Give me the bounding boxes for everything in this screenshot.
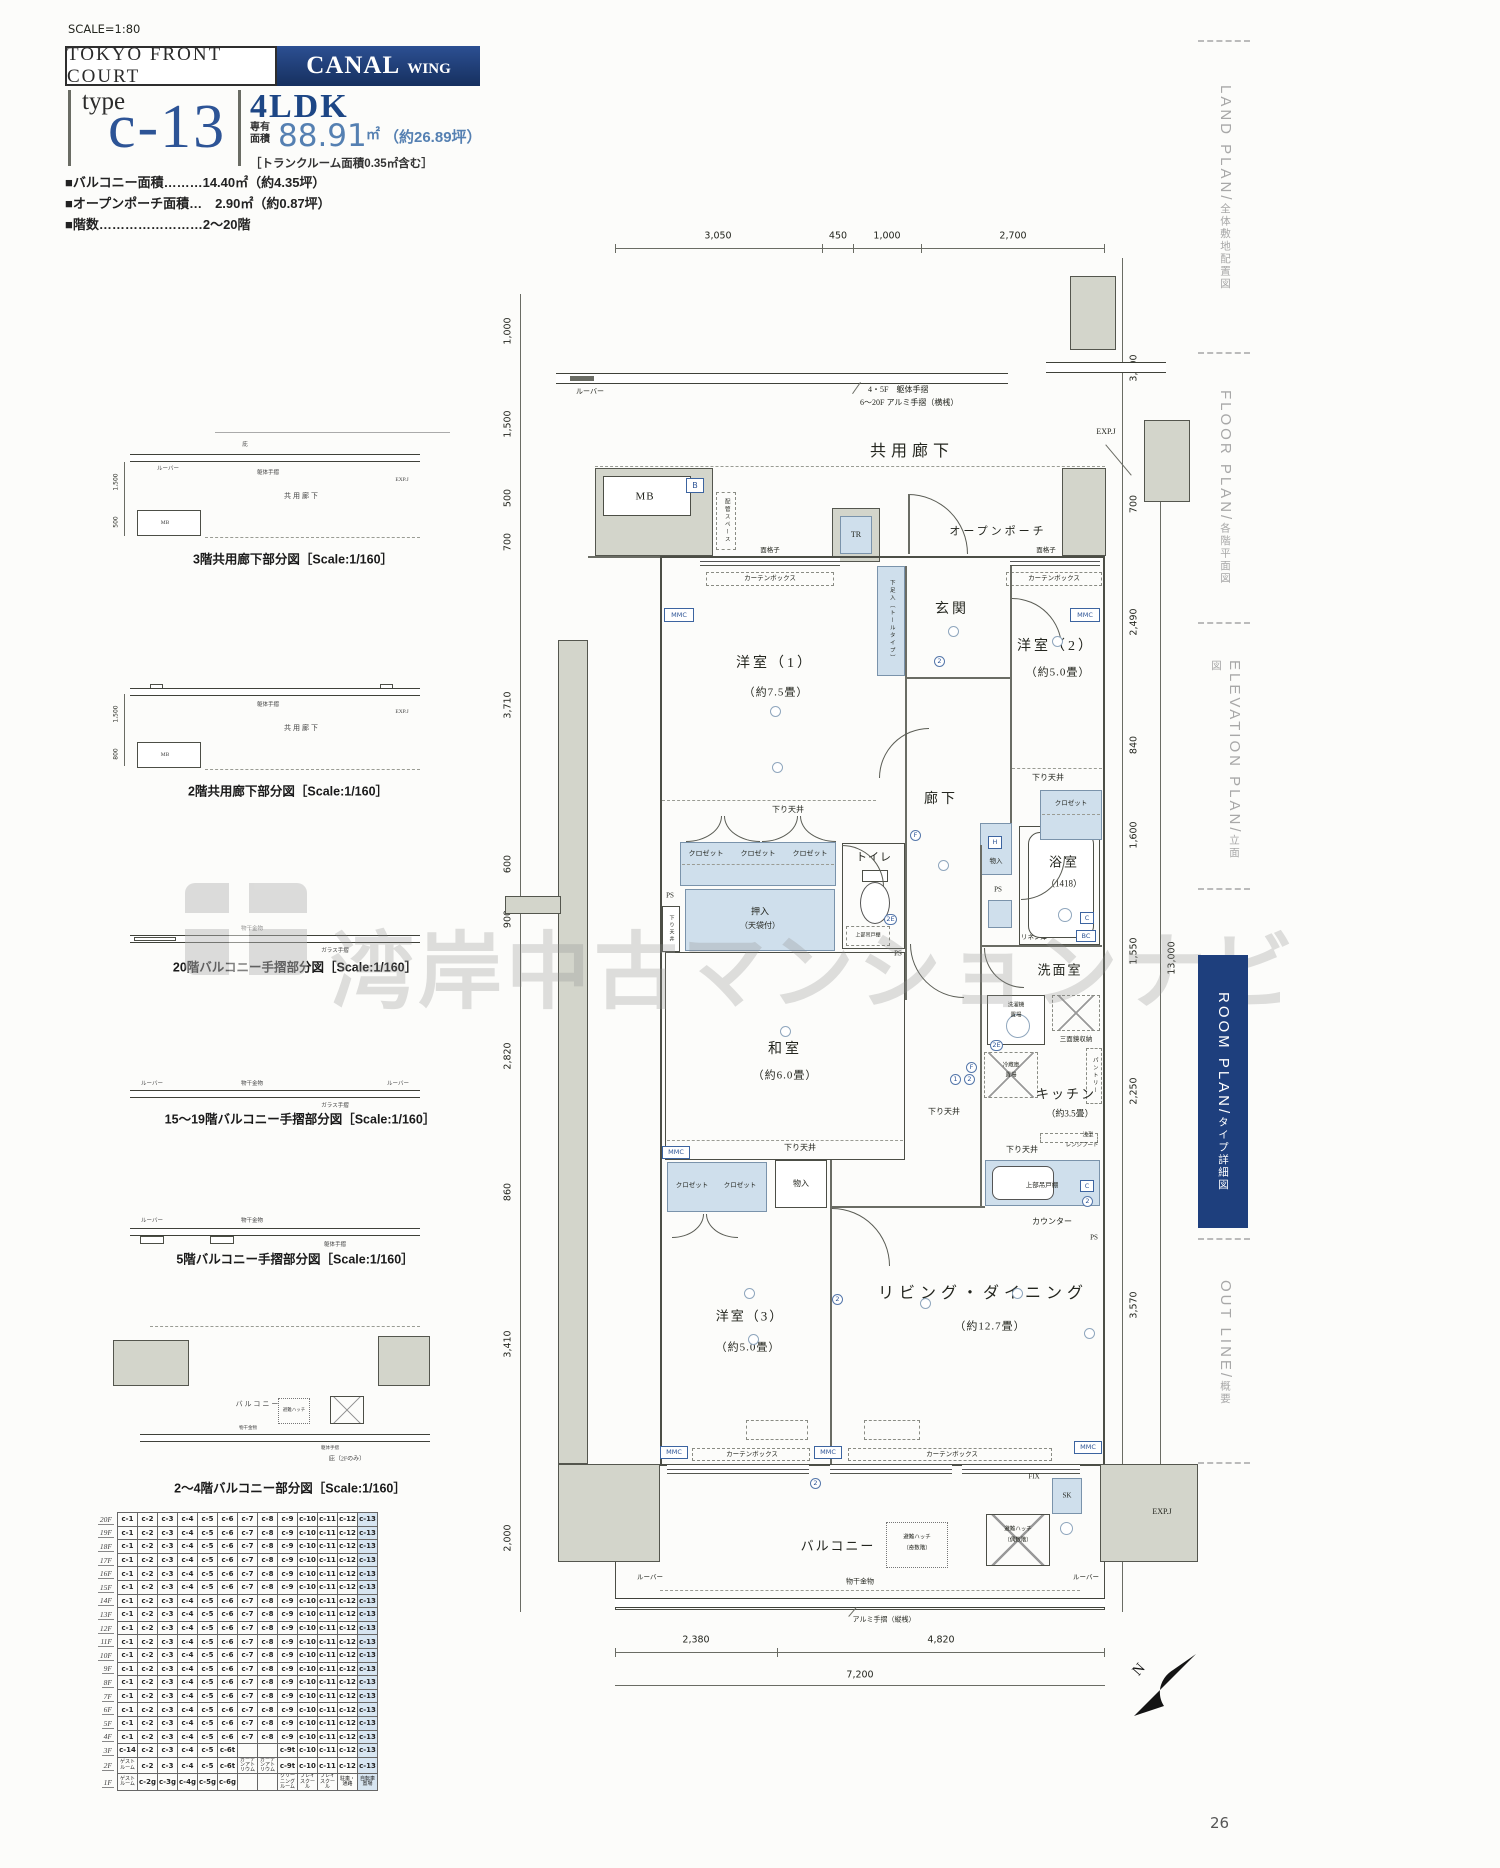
washitsu-size-label: （約6.0畳） (753, 1071, 818, 1082)
type-cell: c-11 (318, 1662, 338, 1676)
type-cell: c-14 (118, 1744, 138, 1758)
type-cell: c-2 (138, 1608, 158, 1622)
type-cell: c-2 (138, 1689, 158, 1703)
hall-west-wall (905, 566, 907, 1000)
floor-row: 10Fc-1c-2c-3c-4c-5c-6c-7c-8c-9c-10c-11c-… (88, 1648, 378, 1662)
mini1-dim-500: 500 (113, 516, 120, 527)
type-cell: c-5 (198, 1648, 218, 1662)
floor-row: 16Fc-1c-2c-3c-4c-5c-6c-7c-8c-9c-10c-11c-… (88, 1567, 378, 1581)
mini6-pillar-right (378, 1336, 430, 1386)
type-cell: c-2 (138, 1621, 158, 1635)
type-cell: c-11 (318, 1608, 338, 1622)
mini1-canopy-line (215, 432, 450, 433)
h-storage-box (980, 823, 1012, 875)
mmc-badge-bed3: MMC (660, 1446, 688, 1459)
proj-box-2 (864, 1420, 920, 1440)
type-cell: c-10 (298, 1676, 318, 1690)
mini2-dim-800: 800 (113, 748, 120, 759)
mini5-caption: 5階バルコニー手摺部分図［Scale:1/160］ (176, 1249, 413, 1268)
sidebar-divider (1198, 888, 1250, 890)
type-cell: 自転車置場 (358, 1774, 378, 1791)
bed3-label: 洋室（3） (716, 1310, 785, 1323)
type-cell: c-9 (278, 1526, 298, 1540)
linen-box (988, 900, 1012, 928)
type-cell: c-6 (218, 1526, 238, 1540)
type-cell: c-7 (238, 1567, 258, 1581)
type-cell: c-13 (358, 1730, 378, 1744)
type-cell: c-5 (198, 1513, 218, 1527)
corridor-label: 共用廊下 (870, 444, 954, 460)
mini6-rail (140, 1434, 430, 1442)
louver-hatch (570, 376, 594, 381)
type-cell: c-3g (158, 1774, 178, 1791)
tick (615, 1648, 616, 1657)
type-cell: c-8 (258, 1676, 278, 1690)
area-prefix-2: 面積 (250, 134, 270, 146)
sidebar-divider (1198, 40, 1250, 42)
type-cell: c-1 (118, 1526, 138, 1540)
mini3-monohoshi-label: 物干金物 (241, 924, 263, 932)
rangehood-label-1: 浅型 (1082, 1133, 1093, 1139)
living-lamp3 (1084, 1328, 1095, 1339)
type-cell: c-11 (318, 1526, 338, 1540)
type-cell: c-8 (258, 1553, 278, 1567)
open-porch-label: オープンポーチ (949, 527, 1046, 538)
expj-label-top: EXP.J (1096, 428, 1115, 436)
type-cell: c-9 (278, 1594, 298, 1608)
bed1-closet-mid (682, 864, 834, 865)
type-cell: c-1 (118, 1553, 138, 1567)
type-cell: c-10 (298, 1716, 318, 1730)
dim-bottom-total: 7,200 (846, 1670, 873, 1681)
type-cell: c-4 (178, 1744, 198, 1758)
b-badge: B (686, 478, 704, 493)
genkan-hall-wall (905, 677, 1010, 679)
bed2-closet (1040, 790, 1102, 840)
type-cell: c-4 (178, 1513, 198, 1527)
floor-label: 3F (88, 1744, 118, 1758)
type-cell: c-4 (178, 1621, 198, 1635)
type-cell: c-10 (298, 1703, 318, 1717)
dimline-right-outer (1160, 479, 1161, 1479)
type-cell: c-2 (138, 1676, 158, 1690)
mini2-corridor-edge (205, 769, 420, 770)
laundry-label-1: 洗濯機 (1008, 1003, 1025, 1009)
type-cell: c-4 (178, 1676, 198, 1690)
compass-needle (1134, 1654, 1196, 1716)
bed2-lowceil-label: 下り天井 (1032, 774, 1064, 782)
type-cell: c-9 (278, 1513, 298, 1527)
balcony-label: バルコニー (801, 1540, 876, 1553)
type-cell: ガーデンアトリウム (258, 1757, 278, 1774)
entry-door-arc (908, 494, 968, 554)
ps-label-4: PS (1090, 1235, 1098, 1242)
type-cell: c-1 (118, 1716, 138, 1730)
type-cell: c-2 (138, 1716, 158, 1730)
bed3-closet-label-2: クロゼット (724, 1183, 757, 1190)
type-cell: c-11 (318, 1730, 338, 1744)
type-rule-mid (238, 90, 241, 166)
type-cell: c-3 (158, 1676, 178, 1690)
type-cell: c-4 (178, 1580, 198, 1594)
tab-text: ELEVATION PLAN/立面図 (1207, 660, 1243, 870)
mmc-badge-living: MMC (814, 1446, 842, 1459)
floor-row: 2Fゲストルームc-2c-3c-4c-5c-6tガーデンアトリウムガーデンアトリ… (88, 1757, 378, 1774)
mini6-hatch-solid (330, 1396, 364, 1424)
area-value: 88.91 (278, 118, 367, 154)
type-cell: c-3 (158, 1513, 178, 1527)
balcony-drain (1060, 1522, 1073, 1535)
mini4-louver-left: ルーバー (141, 1079, 163, 1087)
corridor-handrail-left (556, 373, 1008, 384)
floor-label: 17F (88, 1553, 118, 1567)
oshiire-label-1: 押入 (751, 908, 769, 917)
dim-top-0: 3,050 (704, 231, 731, 242)
type-cell: c-5 (198, 1580, 218, 1594)
badge-2e-toilet: 2E (884, 914, 897, 925)
entry-door-leaf (908, 494, 910, 554)
type-cell: c-5 (198, 1621, 218, 1635)
type-cell: c-6 (218, 1730, 238, 1744)
type-cell: c-9 (278, 1540, 298, 1554)
monohoshi-line (660, 1590, 1080, 1591)
mini6-balcony-label: バルコニー (236, 1399, 281, 1409)
type-rule-left (68, 90, 71, 166)
type-cell: c-5 (198, 1703, 218, 1717)
type-cell: c-13 (358, 1744, 378, 1758)
handrail-note-1: 4・5F 躯体手摺 (868, 386, 928, 394)
type-cell: c-10 (298, 1744, 318, 1758)
floor-row: 5Fc-1c-2c-3c-4c-5c-6c-7c-8c-9c-10c-11c-1… (88, 1716, 378, 1730)
type-cell: c-6 (218, 1540, 238, 1554)
type-cell: c-1 (118, 1635, 138, 1649)
fridge-label-2: 置場 (1005, 1073, 1016, 1079)
dimline-bottom-total (615, 1685, 1105, 1686)
bed3-lamp1 (744, 1288, 755, 1299)
type-cell: c-6t (218, 1744, 238, 1758)
ps-label-1: PS (666, 893, 674, 900)
type-cell: c-1 (118, 1513, 138, 1527)
tick (853, 244, 854, 253)
type-cell: c-3 (158, 1744, 178, 1758)
type-cell: c-3 (158, 1730, 178, 1744)
tick (921, 244, 922, 253)
bed2-lamp (1052, 636, 1063, 647)
mini2-expj-label: EXP.J (395, 709, 408, 715)
type-cell: c-8 (258, 1526, 278, 1540)
type-cell: c-2 (138, 1635, 158, 1649)
sk-label: SK (1063, 1493, 1072, 1500)
mini1-louver-label: ルーバー (157, 464, 179, 472)
area-tsubo: （約26.89坪） (384, 126, 482, 147)
dim-right-1: 700 (1129, 495, 1140, 513)
type-cell: c-5 (198, 1567, 218, 1581)
mini1-handrail-label: 躯体手摺 (257, 468, 279, 476)
louver-label-top: ルーバー (576, 389, 604, 396)
unit-top-edge (595, 466, 1105, 467)
curtain-box-bed3-label: カーテンボックス (726, 1452, 778, 1459)
type-cell: c-3 (158, 1662, 178, 1676)
balcony-area-line: ■バルコニー面積………14.40㎡（約4.35坪） (65, 172, 325, 191)
type-cell: c-8 (258, 1567, 278, 1581)
type-cell: c-12 (338, 1608, 358, 1622)
floors-line: ■階数……………………2～20階 (65, 214, 251, 233)
type-cell: c-9t (278, 1757, 298, 1774)
mini1-corridor-label: 共用廊下 (284, 491, 320, 501)
type-cell: c-6 (218, 1703, 238, 1717)
sidebar-divider (1198, 1238, 1250, 1240)
type-cell: c-10 (298, 1621, 318, 1635)
type-cell: c-13 (358, 1676, 378, 1690)
tick (1104, 1648, 1105, 1657)
type-cell: c-5 (198, 1635, 218, 1649)
lowceil-label-kitchen: 下り天井 (1006, 1146, 1038, 1154)
type-cell: c-6 (218, 1716, 238, 1730)
mini2-mb-label: MB (161, 752, 170, 758)
hatch-even-label-2: （偶数階） (1004, 1538, 1032, 1544)
type-cell: c-10 (298, 1540, 318, 1554)
mini6-handrail-label: 躯体手摺 (321, 1445, 339, 1451)
type-cell: c-10 (298, 1730, 318, 1744)
type-cell: c-12 (338, 1526, 358, 1540)
sidebar-item-floor-plan[interactable]: FLOOR PLAN/各階平面図 (1202, 390, 1248, 605)
type-cell: c-1 (118, 1608, 138, 1622)
bed2-closet-mid (1042, 814, 1100, 815)
hatch-even-label-1: 避難ハッチ (1004, 1527, 1032, 1533)
type-cell: c-5 (198, 1608, 218, 1622)
type-cell: c-3 (158, 1703, 178, 1717)
type-cell: c-5 (198, 1676, 218, 1690)
type-cell: c-11 (318, 1757, 338, 1774)
dim-right-total: 13,000 (1167, 941, 1178, 974)
floor-label: 10F (88, 1648, 118, 1662)
mini1-expj-label: EXP.J (395, 477, 408, 483)
mini6-hatch-label: 避難ハッチ (283, 1407, 306, 1413)
type-cell: c-10 (298, 1648, 318, 1662)
type-cell: c-10 (298, 1567, 318, 1581)
bath-drain (1058, 908, 1072, 922)
dim-right-2: 2,490 (1129, 608, 1140, 635)
type-cell: c-11 (318, 1648, 338, 1662)
type-cell: c-7 (238, 1676, 258, 1690)
type-cell: c-11 (318, 1580, 338, 1594)
type-cell: c-11 (318, 1703, 338, 1717)
area-prefix-1: 専有 (250, 122, 270, 134)
dimline-left (520, 294, 521, 1612)
dim-left-2: 500 (503, 489, 514, 507)
area-unit: ㎡ (366, 124, 380, 144)
type-cell: c-12 (338, 1716, 358, 1730)
senmen-top-wall (980, 945, 1102, 947)
mini6-curtainbox-line (150, 1326, 420, 1327)
dim-bottom-1: 4,820 (927, 1635, 954, 1646)
type-cell: c-12 (338, 1744, 358, 1758)
type-code: c-13 (108, 92, 226, 163)
type-cell: c-8 (258, 1730, 278, 1744)
dimline-bottom (615, 1652, 1105, 1653)
column-top-right (1070, 276, 1116, 350)
mini1-corridor-edge (205, 537, 420, 538)
floor-type-table-body: 20Fc-1c-2c-3c-4c-5c-6c-7c-8c-9c-10c-11c-… (88, 1513, 378, 1791)
dim-left-4: 3,710 (503, 691, 514, 718)
sidebar-item-elevation-plan[interactable]: ELEVATION PLAN/立面図 (1202, 660, 1248, 870)
type-cell: c-7 (238, 1608, 258, 1622)
tr-label: TR (851, 531, 861, 539)
type-cell: c-3 (158, 1648, 178, 1662)
bed3-size-label: （約5.0畳） (716, 1343, 781, 1354)
mini5-rail (130, 1228, 420, 1236)
type-cell: プレイスクール (318, 1774, 338, 1791)
type-cell (258, 1774, 278, 1791)
badge-2e-laundry: 2E (990, 1040, 1003, 1051)
trunk-note: ［トランクルーム面積0.35㎡含む］ (250, 155, 433, 171)
type-cell: c-2 (138, 1513, 158, 1527)
hatch-odd-label-1: 避難ハッチ (903, 1535, 931, 1541)
floor-label: 8F (88, 1676, 118, 1690)
bed1-lowceil-line (662, 800, 876, 801)
dimline-top (615, 248, 1105, 249)
tab-text: LAND PLAN/全体敷地配置図 (1216, 85, 1234, 290)
pillar-bottom-left (558, 1464, 660, 1562)
bed2-lowceil-line (1012, 768, 1102, 769)
alumi-rail-label: アルミ手摺（縦桟） (853, 1617, 916, 1624)
type-cell: c-2 (138, 1648, 158, 1662)
type-cell: c-1 (118, 1594, 138, 1608)
type-cell: c-7 (238, 1580, 258, 1594)
badge-1: 1 (950, 1074, 961, 1085)
floor-row: 18Fc-1c-2c-3c-4c-5c-6c-7c-8c-9c-10c-11c-… (88, 1540, 378, 1554)
bed3-closet-label-1: クロゼット (676, 1183, 709, 1190)
wing-name: CANAL WING (306, 52, 451, 80)
type-cell: c-7 (238, 1716, 258, 1730)
floor-label: 12F (88, 1621, 118, 1635)
type-cell: c-5 (198, 1540, 218, 1554)
closet-label-2: クロゼット (741, 851, 776, 858)
type-cell: c-10 (298, 1608, 318, 1622)
type-cell: c-4g (178, 1774, 198, 1791)
type-cell: c-12 (338, 1689, 358, 1703)
lowceil-label-washitsu-side: 下り天井 (928, 1108, 960, 1116)
floor-row: 1Fゲストルームc-2gc-3gc-4gc-5gc-6gクリーニングルームプレイ… (88, 1774, 378, 1791)
mini2-corridor-label: 共用廊下 (284, 723, 320, 733)
bed1-lowceil-label: 下り天井 (772, 806, 804, 814)
sidebar-divider (1198, 1462, 1250, 1464)
floor-row: 14Fc-1c-2c-3c-4c-5c-6c-7c-8c-9c-10c-11c-… (88, 1594, 378, 1608)
pillar-bottom-right (1100, 1464, 1198, 1562)
tick (822, 244, 823, 253)
floor-row: 13Fc-1c-2c-3c-4c-5c-6c-7c-8c-9c-10c-11c-… (88, 1608, 378, 1622)
floor-label: 11F (88, 1635, 118, 1649)
corridor-handrail-right (1046, 362, 1166, 373)
type-cell: c-2 (138, 1757, 158, 1774)
closet-label-1: クロゼット (689, 851, 724, 858)
type-cell: c-6 (218, 1567, 238, 1581)
type-cell: c-11 (318, 1621, 338, 1635)
wing-banner: CANAL WING (277, 46, 480, 86)
type-cell: c-13 (358, 1567, 378, 1581)
type-cell: c-13 (358, 1716, 378, 1730)
floor-row: 6Fc-1c-2c-3c-4c-5c-6c-7c-8c-9c-10c-11c-1… (88, 1703, 378, 1717)
senmen-label: 洗面室 (1037, 964, 1082, 977)
mini2-dimline (124, 694, 125, 766)
grille-label-left: 面格子 (760, 548, 780, 555)
type-cell: c-13 (358, 1540, 378, 1554)
mirror-cabinet-box (1052, 995, 1100, 1031)
badge-f-hall: F (910, 830, 921, 841)
type-cell: c-10 (298, 1526, 318, 1540)
type-cell: c-6 (218, 1648, 238, 1662)
type-cell: c-13 (358, 1648, 378, 1662)
type-cell: c-10 (298, 1689, 318, 1703)
type-cell: c-8 (258, 1689, 278, 1703)
entrance-label: 玄関 (935, 603, 969, 617)
sidebar-divider (1198, 352, 1250, 354)
mini4-rail (130, 1090, 420, 1098)
type-cell (238, 1744, 258, 1758)
dim-top-1: 450 (829, 231, 847, 242)
type-cell: c-4 (178, 1730, 198, 1744)
floor-label: 19F (88, 1526, 118, 1540)
porch-side-wall (1062, 468, 1106, 556)
sidebar-item-room-plan[interactable]: ROOM PLAN/タイプ詳細図 (1198, 955, 1248, 1228)
dim-right-7: 3,570 (1129, 1291, 1140, 1318)
dim-left-7: 2,820 (503, 1042, 514, 1069)
type-cell: c-4 (178, 1716, 198, 1730)
type-cell: c-5 (198, 1757, 218, 1774)
living-size-label: （約12.7畳） (954, 1322, 1025, 1333)
type-cell: c-2 (138, 1553, 158, 1567)
type-cell: c-13 (358, 1703, 378, 1717)
type-cell: 駐車・通路 (338, 1774, 358, 1791)
mini1-rail (130, 454, 420, 462)
mini6-pillar-left (113, 1340, 189, 1386)
expj-leader (1105, 444, 1131, 475)
sidebar-item-land-plan[interactable]: LAND PLAN/全体敷地配置図 (1202, 85, 1248, 335)
type-cell: c-10 (298, 1580, 318, 1594)
floor-type-table: 20Fc-1c-2c-3c-4c-5c-6c-7c-8c-9c-10c-11c-… (88, 1512, 378, 1791)
type-cell: c-5 (198, 1744, 218, 1758)
type-cell: c-1 (118, 1648, 138, 1662)
sidebar-item-outline[interactable]: OUT LINE/概要 (1202, 1280, 1248, 1430)
type-cell: c-7 (238, 1703, 258, 1717)
toilet-cabinet-label: 上部吊戸棚 (855, 934, 880, 939)
type-cell: c-4 (178, 1648, 198, 1662)
type-cell: c-11 (318, 1716, 338, 1730)
lowceil-box-label: 下り天井 (669, 915, 674, 943)
type-cell: c-4 (178, 1703, 198, 1717)
type-cell: c-2 (138, 1730, 158, 1744)
type-cell: c-12 (338, 1635, 358, 1649)
mmc-badge-washitsu: MMC (662, 1146, 690, 1159)
tick (777, 1648, 778, 1657)
expj-column-top (1144, 420, 1190, 502)
floor-row: 12Fc-1c-2c-3c-4c-5c-6c-7c-8c-9c-10c-11c-… (88, 1621, 378, 1635)
floor-label: 5F (88, 1716, 118, 1730)
type-cell: c-13 (358, 1580, 378, 1594)
dim-left-1: 1,500 (503, 410, 514, 437)
type-cell: c-8 (258, 1513, 278, 1527)
floor-row: 15Fc-1c-2c-3c-4c-5c-6c-7c-8c-9c-10c-11c-… (88, 1580, 378, 1594)
type-cell: c-9 (278, 1608, 298, 1622)
badge-2-living: 2 (832, 1294, 843, 1305)
bed2-size-label: （約5.0畳） (1026, 668, 1091, 679)
type-cell: c-3 (158, 1689, 178, 1703)
laundry-label-2: 置場 (1010, 1013, 1021, 1019)
type-cell: c-9 (278, 1648, 298, 1662)
type-cell: c-9t (278, 1744, 298, 1758)
type-cell: c-6 (218, 1513, 238, 1527)
louver-label-bottom-right: ルーバー (1073, 1575, 1099, 1582)
